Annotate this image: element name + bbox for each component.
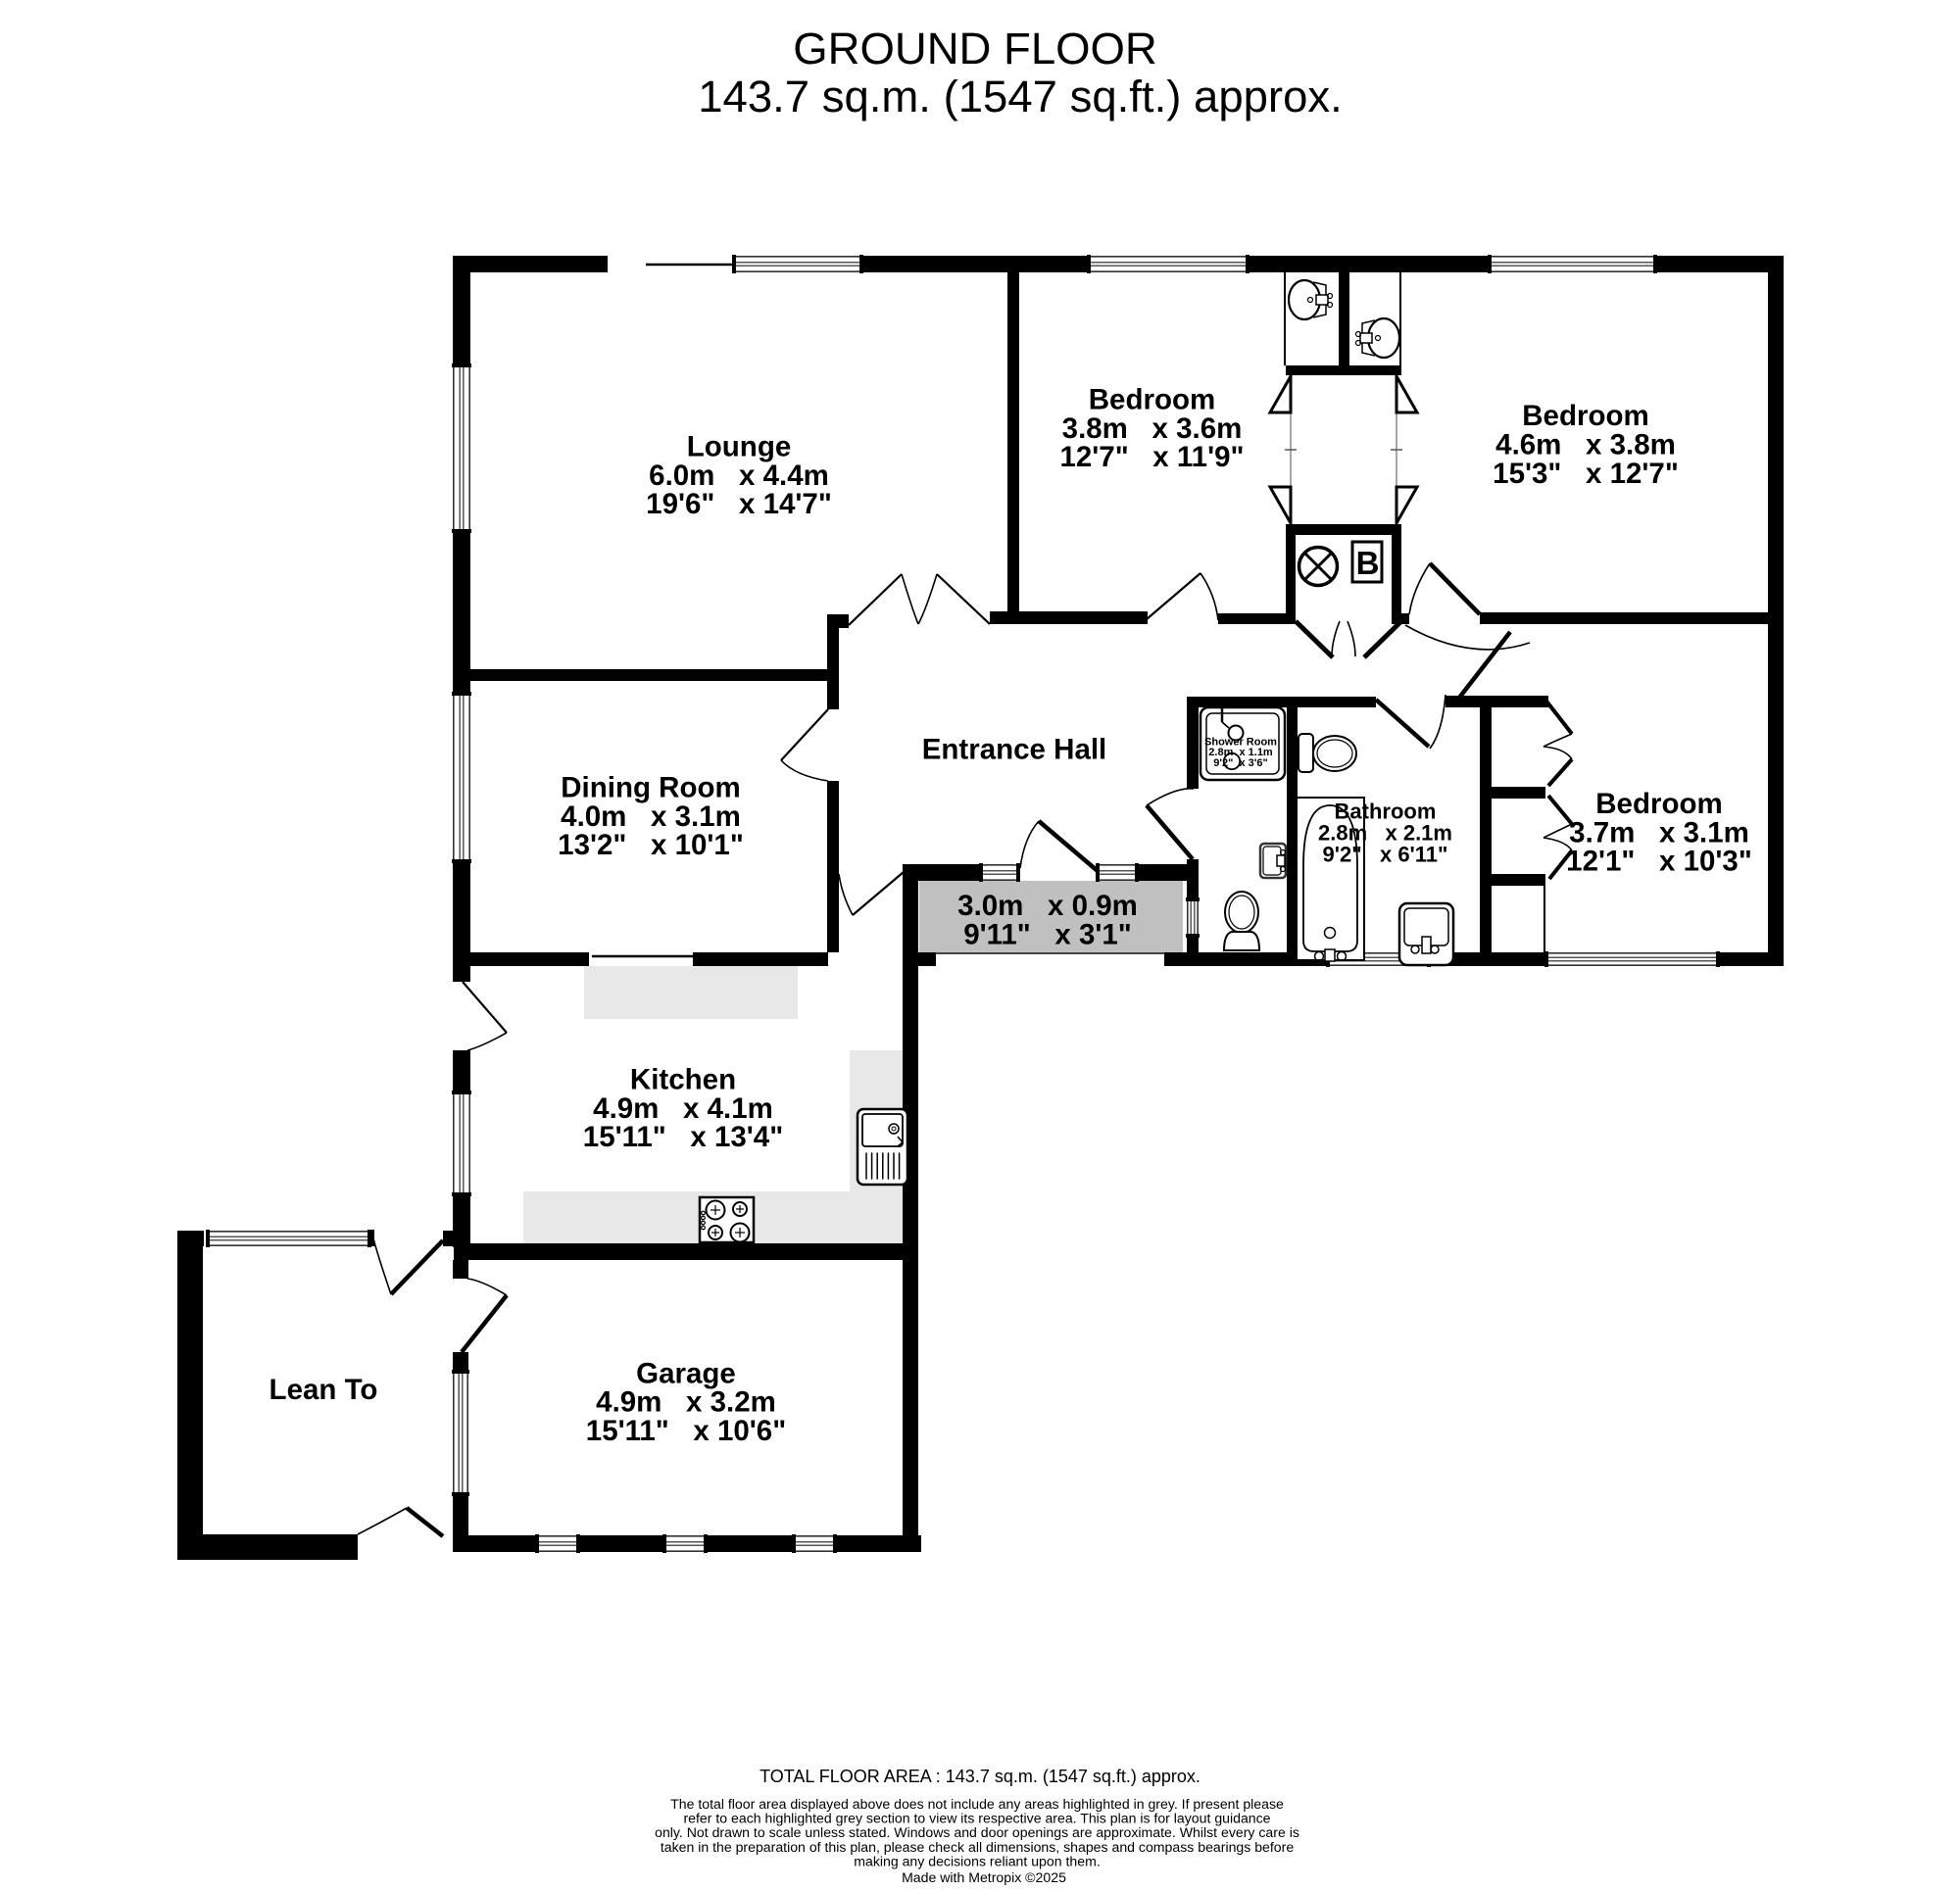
svg-text:4.0m x 3.1m: 4.0m x 3.1m — [561, 800, 741, 833]
svg-text:only. Not drawn to scale unles: only. Not drawn to scale unless stated. … — [655, 1824, 1299, 1840]
svg-text:6.0m x 4.4m: 6.0m x 4.4m — [649, 460, 829, 492]
svg-text:4.6m x 3.8m: 4.6m x 3.8m — [1495, 429, 1676, 461]
svg-text:Bedroom: Bedroom — [1089, 384, 1215, 416]
svg-text:3.0m x 0.9m: 3.0m x 0.9m — [957, 890, 1138, 922]
svg-text:The total floor area displayed: The total floor area displayed above doe… — [670, 1796, 1284, 1812]
svg-text:143.7 sq.m. (1547 sq.ft.) appr: 143.7 sq.m. (1547 sq.ft.) approx. — [698, 72, 1343, 121]
svg-text:TOTAL FLOOR AREA : 143.7 sq.m.: TOTAL FLOOR AREA : 143.7 sq.m. (1547 sq.… — [759, 1767, 1200, 1786]
svg-text:Entrance Hall: Entrance Hall — [922, 734, 1107, 766]
svg-text:Kitchen: Kitchen — [630, 1064, 736, 1096]
svg-text:Lounge: Lounge — [687, 431, 792, 463]
svg-text:15'11" x 10'6": 15'11" x 10'6" — [586, 1415, 786, 1447]
svg-text:9'11" x 3'1": 9'11" x 3'1" — [963, 919, 1132, 951]
svg-text:12'1" x 10'3": 12'1" x 10'3" — [1566, 846, 1752, 878]
svg-text:19'6" x 14'7": 19'6" x 14'7" — [646, 488, 832, 520]
svg-text:15'3" x 12'7": 15'3" x 12'7" — [1493, 458, 1679, 490]
svg-text:Garage: Garage — [636, 1357, 736, 1389]
svg-text:9'2" x 6'11": 9'2" x 6'11" — [1323, 843, 1448, 867]
svg-text:taken in the preparation of th: taken in the preparation of this plan, p… — [661, 1839, 1295, 1855]
svg-text:Made with Metropix ©2025: Made with Metropix ©2025 — [902, 1869, 1066, 1885]
svg-text:9'2" x 3'6": 9'2" x 3'6" — [1213, 757, 1267, 769]
svg-text:Lean To: Lean To — [269, 1374, 378, 1406]
svg-text:13'2" x 10'1": 13'2" x 10'1" — [558, 829, 744, 861]
svg-text:B: B — [1356, 545, 1380, 581]
svg-text:Bedroom: Bedroom — [1595, 788, 1722, 820]
svg-text:4.9m x 3.2m: 4.9m x 3.2m — [596, 1386, 776, 1419]
svg-text:Dining Room: Dining Room — [561, 772, 741, 804]
svg-text:3.8m x 3.6m: 3.8m x 3.6m — [1062, 412, 1243, 445]
svg-text:15'11" x 13'4": 15'11" x 13'4" — [583, 1121, 783, 1153]
svg-text:4.9m x 4.1m: 4.9m x 4.1m — [593, 1092, 773, 1125]
svg-text:making any decisions reliant u: making any decisions reliant upon them. — [854, 1853, 1100, 1868]
svg-text:refer to each highlighted grey: refer to each highlighted grey section t… — [683, 1811, 1270, 1826]
svg-text:Bedroom: Bedroom — [1522, 400, 1648, 432]
svg-text:GROUND FLOOR: GROUND FLOOR — [793, 24, 1157, 73]
svg-text:3.7m x 3.1m: 3.7m x 3.1m — [1569, 816, 1749, 849]
svg-text:12'7" x 11'9": 12'7" x 11'9" — [1059, 441, 1244, 473]
